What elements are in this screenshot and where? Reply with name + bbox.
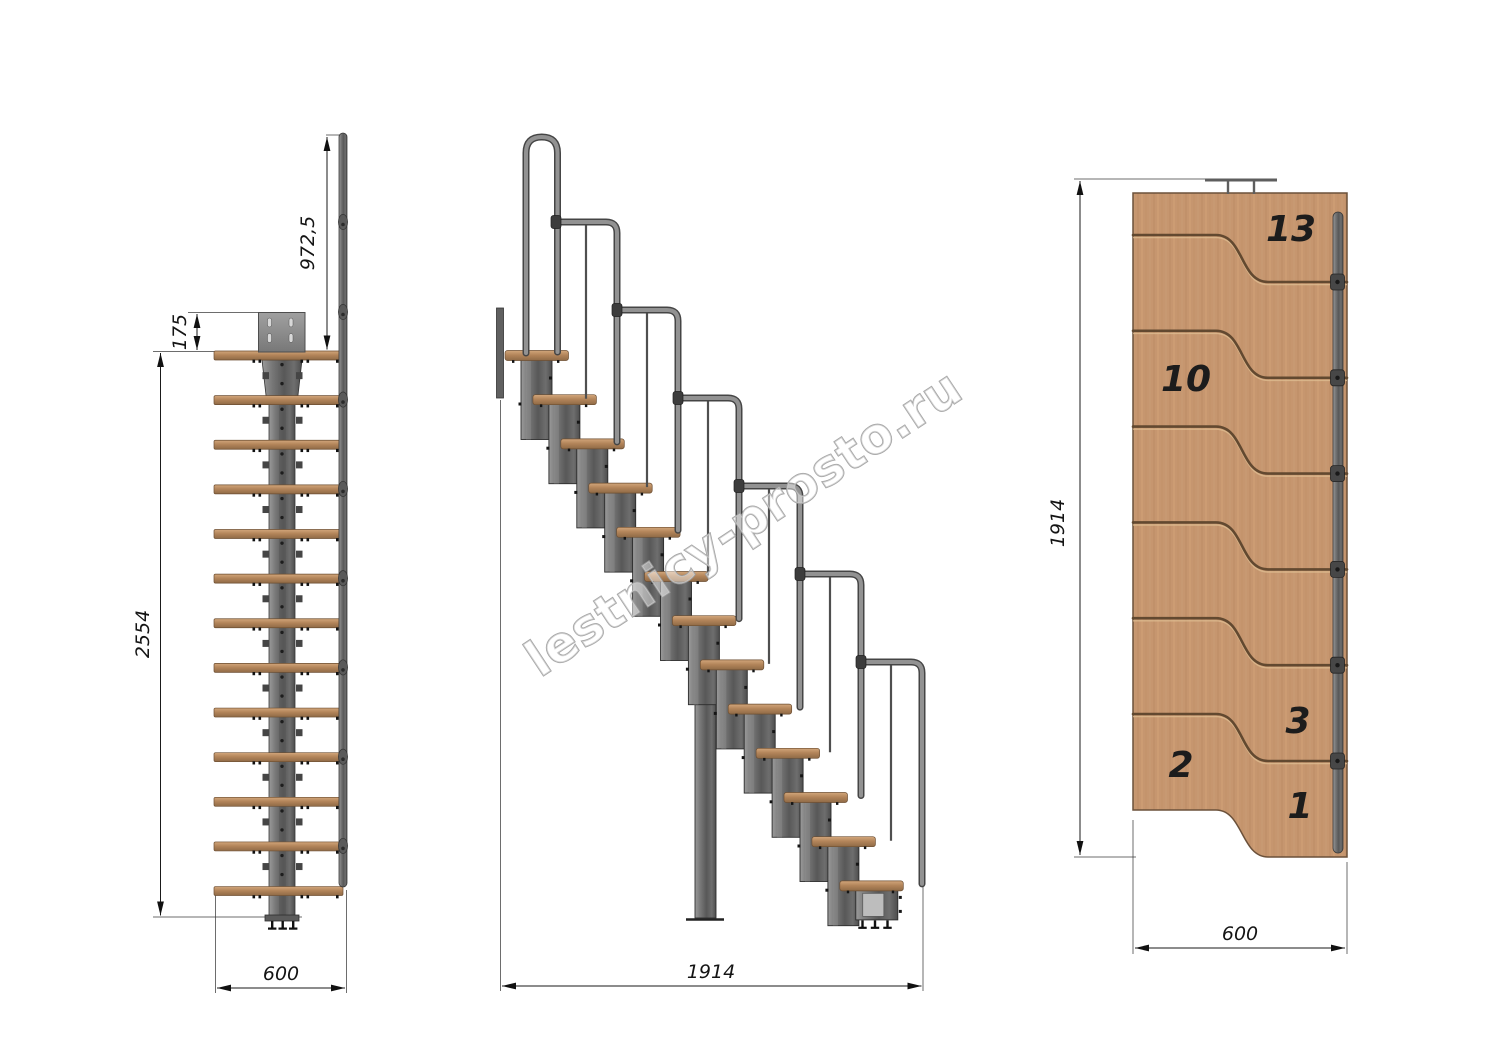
rail-clamp	[338, 571, 347, 586]
module-highlight	[805, 802, 810, 882]
column-hole	[280, 854, 283, 857]
tread-bolt	[259, 851, 262, 854]
anchor-bolt-foot	[883, 927, 891, 929]
tread-bolt	[596, 493, 598, 496]
column-hole	[280, 809, 283, 812]
column-tab	[296, 461, 303, 468]
module-bolt	[689, 598, 692, 601]
module-bolt	[772, 730, 775, 733]
step-label-2: 2	[1168, 745, 1193, 786]
side-tread	[840, 881, 904, 891]
tread-bolt	[259, 627, 262, 630]
base-anchors	[268, 921, 297, 930]
module-bolt	[714, 712, 717, 715]
tread-bolt	[679, 625, 681, 628]
column-tab	[296, 685, 303, 692]
front-tread	[214, 708, 343, 717]
module-highlight	[721, 669, 726, 749]
rail-clamp-pin	[1335, 471, 1339, 475]
tread-bolt	[336, 806, 339, 809]
side-tread	[700, 660, 764, 670]
column-hole	[280, 586, 283, 589]
column-tab	[296, 774, 303, 781]
tread-bolt	[259, 895, 262, 898]
front-tread	[214, 663, 343, 672]
rail-clamp-pin	[1335, 280, 1339, 284]
column-hole	[280, 516, 283, 519]
tread-bolt	[724, 625, 726, 628]
rail-clamp-pin	[1335, 567, 1339, 571]
front-tread	[214, 485, 343, 494]
tread-bolt	[752, 670, 754, 673]
handrail-tube-outline	[526, 137, 558, 353]
plate-slot	[289, 318, 293, 327]
column-hole	[280, 650, 283, 653]
module-bolt	[686, 668, 689, 671]
plate-slot	[289, 334, 293, 343]
column-hole	[280, 720, 283, 723]
tread-bolt	[336, 895, 339, 898]
front-tread	[214, 440, 343, 449]
tread-bolt	[336, 449, 339, 452]
column-hole	[280, 452, 283, 455]
dim-plan-length: 1914	[1047, 499, 1069, 547]
step-label-3: 3	[1285, 701, 1310, 742]
tread-bolt	[253, 583, 256, 586]
column-base	[265, 915, 299, 921]
rail-clamp	[338, 392, 347, 407]
tread-bolt	[307, 851, 310, 854]
module-bolt	[800, 774, 803, 777]
module-highlight	[610, 492, 615, 572]
column-tab	[263, 640, 270, 647]
rail-clamp-pin	[1335, 759, 1339, 763]
tread-bolt	[336, 627, 339, 630]
column-hole	[280, 694, 283, 697]
support-column	[695, 695, 716, 918]
module-bolt	[519, 403, 522, 406]
tread-bolt	[259, 761, 262, 764]
tread-bolt	[808, 758, 810, 761]
step-label-10: 10	[1161, 359, 1211, 400]
column-tab	[263, 372, 270, 379]
tread-bolt	[307, 627, 310, 630]
tread-bolt	[307, 895, 310, 898]
handrail-tube	[526, 137, 558, 353]
tread-bolt	[307, 404, 310, 407]
step-label-13: 13	[1266, 209, 1316, 250]
wall-plate-side	[497, 308, 504, 398]
module-bolt	[798, 845, 801, 848]
anchor-bolt-foot	[871, 927, 879, 929]
column-tab	[263, 506, 270, 513]
column-tab	[296, 818, 303, 825]
dim-total-height: 2554	[132, 610, 154, 658]
column-tab	[263, 818, 270, 825]
column-tab	[296, 551, 303, 558]
tread-bolt	[301, 672, 304, 675]
anchor-bolt-foot	[289, 928, 297, 930]
module-bolt	[602, 535, 605, 538]
module-bolt	[658, 624, 661, 627]
column-tab	[263, 863, 270, 870]
column-hole	[280, 471, 283, 474]
mounting-plate	[259, 313, 306, 353]
tread-bolt	[253, 538, 256, 541]
tread-bolt	[512, 360, 514, 363]
tread-bolt	[847, 891, 849, 894]
module-bolt	[574, 491, 577, 494]
tread-bolt	[253, 404, 256, 407]
module-bolt	[744, 686, 747, 689]
rail-clamp-pin	[341, 400, 345, 404]
column-hole	[280, 828, 283, 831]
tread-bolt	[301, 627, 304, 630]
tread-bolt	[336, 360, 339, 363]
column-tab	[263, 729, 270, 736]
rail-clamp	[612, 304, 622, 317]
tread-bolt	[613, 449, 615, 452]
rail-clamp-pin	[341, 757, 345, 761]
module-highlight	[833, 846, 838, 926]
tread-bolt	[301, 761, 304, 764]
tread-bolt	[641, 493, 643, 496]
rail-clamp	[338, 214, 347, 229]
staircase-technical-drawing: 2554 175 972,5 600	[0, 0, 1500, 1061]
tread-bolt	[301, 449, 304, 452]
rail-clamp	[338, 660, 347, 675]
tread-bolt	[259, 404, 262, 407]
tread-bolt	[253, 493, 256, 496]
drawing-canvas: 2554 175 972,5 600	[0, 0, 1500, 1061]
tread-bolt	[301, 360, 304, 363]
tread-bolt	[557, 360, 559, 363]
side-tread	[589, 483, 653, 493]
column-tab	[296, 729, 303, 736]
column-hole	[280, 427, 283, 430]
tread-bolt	[791, 802, 793, 805]
tread-bolt	[259, 360, 262, 363]
module-highlight	[554, 404, 559, 484]
column-tab	[296, 417, 303, 424]
tread-bolt	[336, 717, 339, 720]
tread-bolt	[336, 672, 339, 675]
tread-bolt	[336, 761, 339, 764]
column-tab	[263, 417, 270, 424]
dim-side-length: 1914	[687, 961, 735, 983]
tread-bolt	[253, 717, 256, 720]
dim-front-width: 600	[263, 963, 299, 985]
tread-bolt	[307, 493, 310, 496]
module-highlight	[693, 625, 698, 705]
rail-clamp	[338, 838, 347, 853]
column-tab	[263, 551, 270, 558]
rail-clamp-pin	[341, 490, 345, 494]
tread-bolt	[307, 449, 310, 452]
module-bolt	[770, 800, 773, 803]
column-tab	[263, 595, 270, 602]
side-tread	[784, 793, 848, 803]
rail-clamp	[673, 392, 683, 405]
tread-bolt	[301, 895, 304, 898]
module-bolt	[828, 819, 831, 822]
rail-clamp-pin	[1335, 376, 1339, 380]
tread-bolt	[253, 360, 256, 363]
module-bolt	[577, 421, 580, 424]
rail-clamp-pin	[341, 668, 345, 672]
module-bolt	[899, 910, 902, 913]
rail-clamp	[338, 304, 347, 319]
column-hole	[280, 382, 283, 385]
step-label-1: 1	[1287, 786, 1312, 827]
front-view: 2554 175 972,5 600	[132, 133, 348, 993]
tread-bolt	[301, 493, 304, 496]
tread-bolt	[259, 449, 262, 452]
plate-slot	[268, 318, 272, 327]
rail-clamp-pin	[1335, 663, 1339, 667]
tread-bolt	[307, 538, 310, 541]
tread-bolt	[253, 761, 256, 764]
column-hole	[280, 675, 283, 678]
tread-bolt	[819, 846, 821, 849]
tread-bolt	[259, 717, 262, 720]
dim-plate-offset: 175	[169, 314, 191, 350]
tread-bolt	[540, 404, 542, 407]
column-tab	[263, 461, 270, 468]
module-bolt	[546, 447, 549, 450]
column-hole	[280, 497, 283, 500]
module-bolt	[742, 756, 745, 759]
column-hole	[280, 739, 283, 742]
tread-bolt	[336, 404, 339, 407]
tread-bolt	[307, 672, 310, 675]
column-tab	[296, 595, 303, 602]
tread-bolt	[259, 493, 262, 496]
column-shade	[279, 404, 286, 917]
tread-bolt	[568, 449, 570, 452]
tread-bolt	[259, 583, 262, 586]
tread-bolt	[735, 714, 737, 717]
front-tread	[214, 574, 343, 583]
tread-bolt	[336, 538, 339, 541]
tread-bolt	[253, 895, 256, 898]
dim-plan-width: 600	[1222, 923, 1258, 945]
module-highlight	[749, 713, 754, 793]
tread-bolt	[301, 404, 304, 407]
tread-bolt	[763, 758, 765, 761]
column-hole	[280, 605, 283, 608]
tread-bolt	[307, 806, 310, 809]
tread-bolt	[780, 714, 782, 717]
rail-clamp	[551, 216, 561, 229]
tread-bolt	[307, 761, 310, 764]
rail-clamp	[795, 568, 805, 581]
tread-bolt	[301, 851, 304, 854]
tread-bolt	[301, 806, 304, 809]
tread-bolt	[307, 583, 310, 586]
column-tab	[296, 506, 303, 513]
tread-bolt	[707, 670, 709, 673]
rail-clamp	[338, 749, 347, 764]
side-tread	[812, 837, 876, 847]
tread-bolt	[307, 360, 310, 363]
tread-bolt	[336, 583, 339, 586]
column-hole	[280, 873, 283, 876]
tread-bolt	[253, 806, 256, 809]
column-tab	[263, 685, 270, 692]
tread-bolt	[336, 493, 339, 496]
module-bolt	[825, 889, 828, 892]
side-tread	[672, 616, 736, 626]
front-tread	[214, 530, 343, 539]
column-tab	[296, 372, 303, 379]
side-tread	[728, 704, 792, 714]
plate-slot	[268, 334, 272, 343]
rail-clamp-pin	[341, 847, 345, 851]
module-bolt	[605, 465, 608, 468]
module-highlight	[526, 360, 531, 440]
tread-bolt	[836, 802, 838, 805]
front-tread	[214, 753, 343, 762]
module-bolt	[716, 642, 719, 645]
front-tread	[214, 842, 343, 851]
module-highlight	[777, 757, 782, 837]
anchor-bolt-foot	[279, 928, 287, 930]
anchor-bolt-foot	[858, 927, 866, 929]
front-tread	[214, 396, 343, 405]
front-tread	[214, 619, 343, 628]
column-hole	[280, 560, 283, 563]
column-hole	[280, 541, 283, 544]
column-tab	[263, 774, 270, 781]
module-bolt	[633, 509, 636, 512]
tread-bolt	[253, 449, 256, 452]
column-hole	[280, 631, 283, 634]
tread-bolt	[864, 846, 866, 849]
base-module-panel	[863, 893, 884, 916]
tread-bolt	[624, 537, 626, 540]
column-tab	[296, 640, 303, 647]
column-hole	[280, 363, 283, 366]
handrail-post-front	[339, 133, 347, 887]
tread-bolt	[253, 851, 256, 854]
tread-bolt	[307, 717, 310, 720]
anchor-bolt-foot	[268, 928, 276, 930]
column-hole	[280, 408, 283, 411]
rail-clamp-pin	[341, 313, 345, 317]
rail-clamp	[856, 656, 866, 669]
front-tread	[214, 887, 343, 896]
tread-bolt	[585, 404, 587, 407]
tread-bolt	[259, 806, 262, 809]
side-tread	[756, 748, 820, 758]
tread-bolt	[892, 891, 894, 894]
plan-view: 1914 600 13 10 3 2 1	[1047, 179, 1347, 954]
rail-clamp	[338, 481, 347, 496]
tread-bolt	[253, 672, 256, 675]
tread-bolt	[301, 717, 304, 720]
tread-bolt	[301, 538, 304, 541]
rail-clamp-pin	[341, 579, 345, 583]
tread-bolt	[253, 627, 256, 630]
tread-bolt	[259, 538, 262, 541]
rail-clamp-pin	[341, 223, 345, 227]
tread-bolt	[259, 672, 262, 675]
module-bolt	[856, 863, 859, 866]
column-tab	[296, 863, 303, 870]
column-hole	[280, 765, 283, 768]
side-tread	[617, 527, 681, 537]
module-bolt	[549, 377, 552, 380]
front-tread	[214, 797, 343, 806]
tread-bolt	[336, 851, 339, 854]
dim-rail-height: 972,5	[297, 216, 319, 270]
module-highlight	[582, 448, 587, 528]
module-bolt	[899, 896, 902, 899]
tread-bolt	[301, 583, 304, 586]
column-hole	[280, 784, 283, 787]
